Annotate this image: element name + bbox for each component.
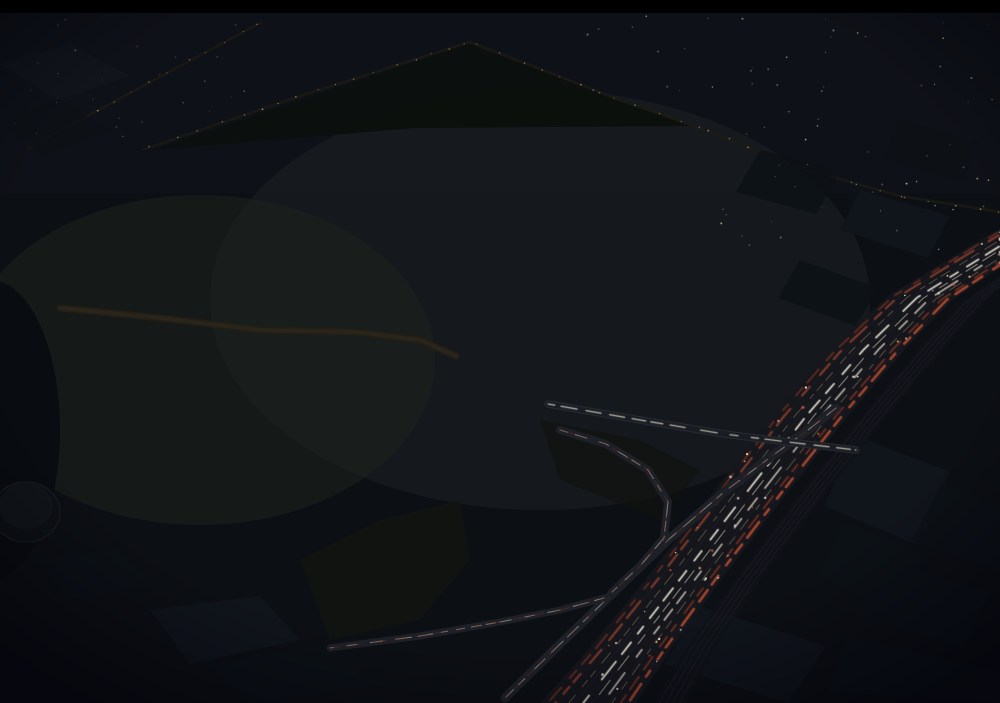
letterbox-bar <box>0 0 1000 13</box>
vignette <box>0 0 1000 703</box>
rendering-canvas <box>0 0 1000 703</box>
scene-image <box>0 0 1000 703</box>
